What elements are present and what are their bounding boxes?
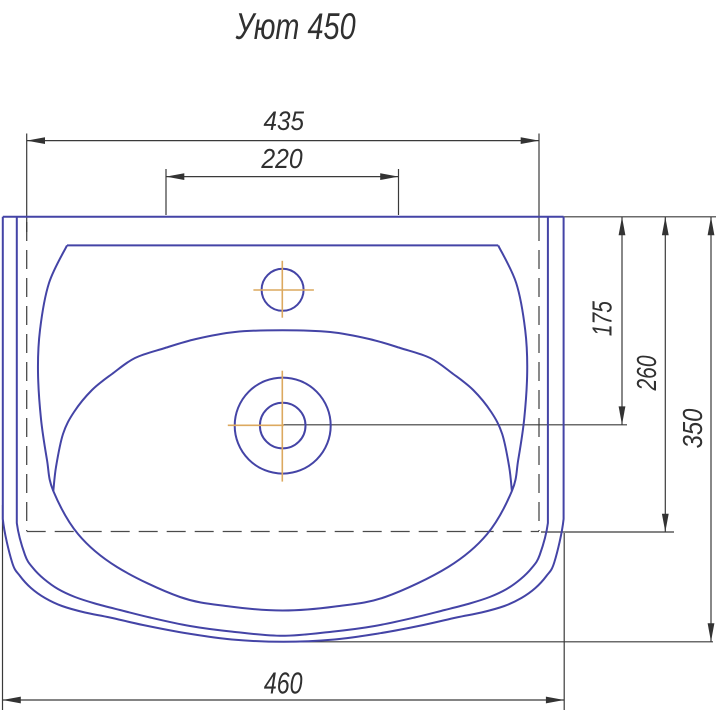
svg-text:260: 260 xyxy=(632,355,663,391)
svg-text:175: 175 xyxy=(588,301,619,336)
svg-text:220: 220 xyxy=(260,143,303,175)
svg-text:460: 460 xyxy=(264,665,303,700)
svg-text:435: 435 xyxy=(264,107,305,136)
svg-text:350: 350 xyxy=(676,408,708,448)
svg-text:Уют 450: Уют 450 xyxy=(235,6,356,47)
